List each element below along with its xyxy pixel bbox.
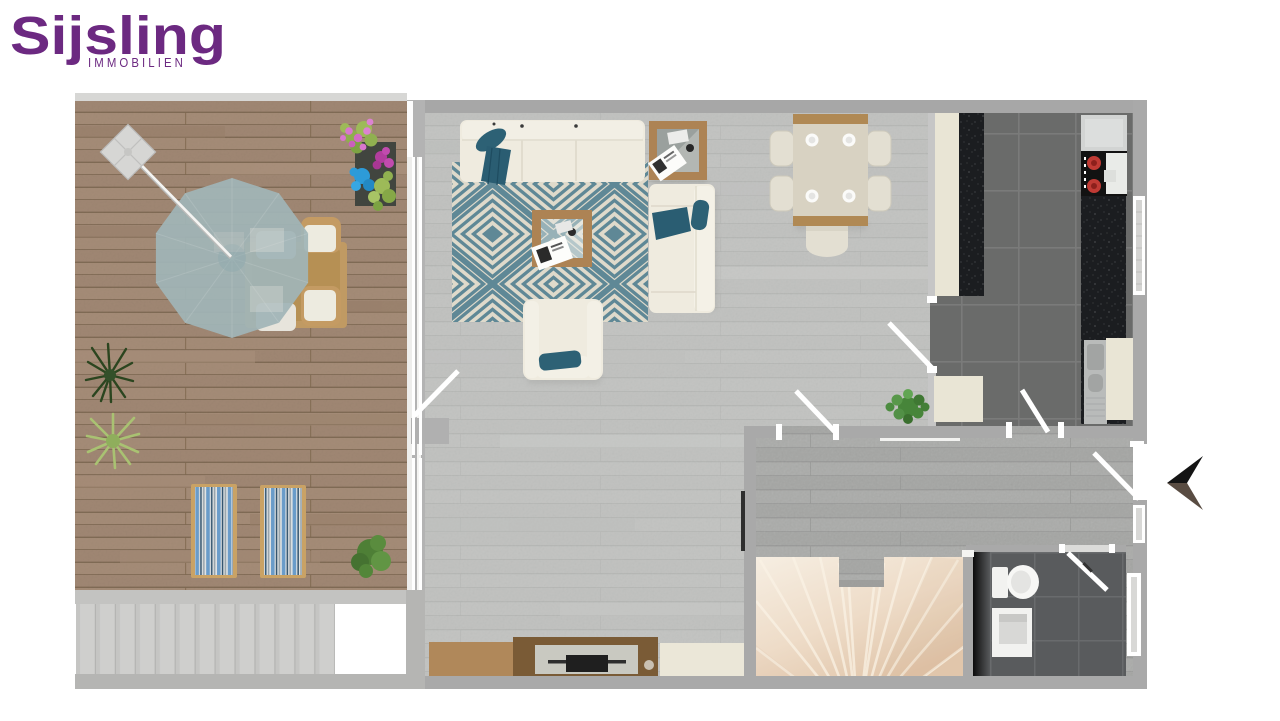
svg-text:IMMOBILIEN: IMMOBILIEN	[88, 56, 186, 70]
